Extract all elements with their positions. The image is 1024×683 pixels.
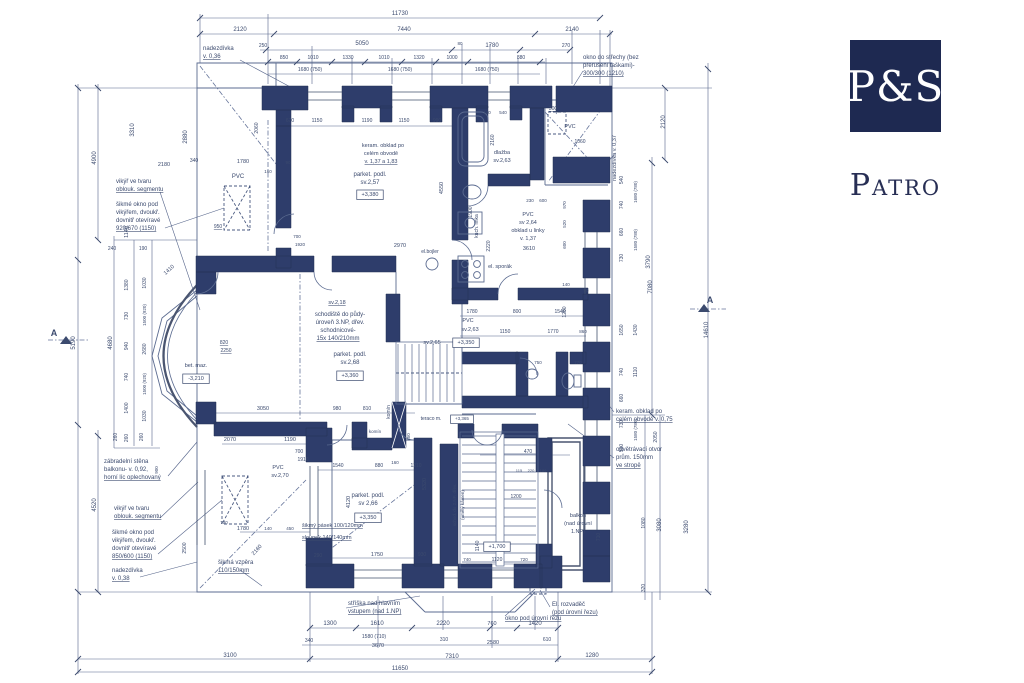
plan-label: 1400 [124,402,130,413]
plan-label: sv.2,18 [328,300,345,306]
plan-label: 880 [517,55,526,61]
plan-label: zábradelní stěna [104,459,149,465]
plan-label: 1320 [413,55,424,61]
plan-label: 160 [264,169,272,174]
plan-label: 4680 [108,336,114,350]
plan-label: přerušení taškami)- [583,63,635,69]
plan-label: vikýřem, dvoukř. [112,538,156,544]
plan-label: 2880 [183,130,189,144]
plan-label: 14610 [704,321,710,338]
plan-label: el.bojler [421,249,439,255]
plan-label: 730 [124,312,130,321]
screenshot-root: 1173021207440214025050508017802708501010… [0,0,1024,683]
plan-label: 1780 [485,43,499,49]
plan-label: 1780 [237,159,249,165]
plan-label: 860 [579,329,587,334]
plan-label: 2120 [233,27,247,33]
plan-label: 1190 [284,437,296,443]
plan-label: 1280 [585,653,599,659]
plan-label: el. sporák [488,264,512,270]
plan-label: 1780 [466,309,477,315]
plan-label: 1140 [475,540,481,551]
plan-label: 1030 [142,277,148,288]
plan-label: dovnitř otevíravé [116,218,161,224]
plan-label: 1540 [332,463,343,469]
plan-label: A [707,295,714,305]
plan-label: 2970 [394,243,406,249]
plan-label: 260 [113,433,119,442]
plan-label: 720 [520,557,528,562]
plan-label: ve stropě [616,463,641,469]
plan-label: šikmá vzpěra [218,560,254,566]
section-markers [60,304,710,344]
plan-label: schodnicové- [320,328,355,334]
plan-label: 850/600 (1150) [112,554,152,560]
plan-label: 1580 (710) [362,634,387,640]
plan-label: obklad u linky [511,228,545,234]
plan-label: celém obvodě [364,151,398,157]
plan-label: odvětrávací otvor [616,447,662,453]
plan-label: 340 [305,638,314,644]
plan-label: 2180 [158,162,170,168]
plan-label: 2160 [490,134,496,145]
plan-label: 290 [314,553,323,559]
plan-label: 930 [418,552,427,558]
plan-label: 1430 [633,324,639,335]
plan-label: 3670 [372,643,384,649]
plan-label: 900 [154,466,159,474]
plan-label: 660 [619,394,625,403]
plan-label: šikmé okno pod [116,202,158,208]
plan-label: schodiště do půdy- [315,311,365,318]
plan-label: sv.2,63 [493,158,510,164]
plan-label: 750 [534,360,542,365]
plan-label: 1610 [370,621,384,627]
plan-label: šikmý pásek 100/120mm [302,523,363,529]
plan-label: 540 [499,110,507,115]
plan-label: 90 [285,160,291,165]
plan-label: 1910 [297,457,308,463]
plan-label: 760 [487,621,496,627]
plan-label: 1500 (920) [142,304,147,326]
plan-label: 270 [562,43,571,49]
plan-label: nadezdívka [203,46,234,52]
plan-label: 220 [528,468,535,473]
plan-label: 115 [516,468,523,473]
plan-label: 1210 [410,463,421,469]
plan-label: 1.NP) [571,529,585,535]
plan-label: 260 [124,434,130,443]
plan-label: 1920 [295,242,306,247]
plan-label: nadezdívka v. 0,37 [612,135,618,181]
plan-label: 2060 [254,122,260,133]
plan-label: 160 [391,460,399,465]
plan-label: 980 [333,406,342,412]
logo-name-text: Patro [843,168,948,203]
plan-label: 1770 [547,329,558,335]
plan-label: oblouk. segmentu [114,514,161,520]
plan-label: celém obvodě v. 0,75 [616,417,673,423]
plan-label: 2160 [251,544,264,557]
plan-label: 5050 [355,41,369,47]
plan-label: vikýř ve tvaru [114,506,149,512]
plan-label: 2050 [653,431,659,442]
dimension-lines [75,14,712,675]
plan-label: kuch. linka [474,214,480,238]
plan-label: 1410 [163,264,176,277]
plan-label: dovnitř otevíravé [112,546,157,552]
plan-label: 1010 [378,55,389,61]
plan-label: v. 1,37 a 1,83 [365,159,398,165]
plan-label: 3790 [646,255,652,269]
plan-label: 1030 [142,410,148,421]
plan-label: 260 [139,433,145,442]
plan-label: (nad úrovní [564,521,592,527]
walls [196,86,612,588]
plan-label: 4900 [92,151,98,165]
plan-label: 770 [574,360,582,365]
plan-label: 650 [406,433,411,441]
plan-label: 740 [619,368,625,377]
plan-label: 3610 [523,246,535,252]
plan-label: komín [386,405,392,419]
plan-label: +1,700 [489,544,506,550]
plan-label: PVC [564,124,575,130]
plan-label: vikýř ve tvaru [116,179,151,185]
plan-label: balkon [570,513,586,519]
plan-label: komín [369,429,382,434]
plan-label: 320 [641,584,647,593]
plan-label: 450 [286,526,294,531]
plan-label: 2580 [487,640,499,646]
plan-label: úroveň 3.NP, dřev. [316,320,365,326]
plan-label: 300/300 (1210) [583,71,624,77]
plan-label: 2140 [565,27,579,33]
plan-label: (umělý kámen) [460,490,465,520]
plan-label: bet. maz. [185,363,208,369]
plan-label: 5190 [71,336,77,350]
plan-label: nadezdívka [112,568,143,574]
plan-label: v. 0,38 [112,576,130,582]
plan-label: 670 [286,118,295,124]
plan-label: keram. obklad po [616,409,663,415]
plan-label: 940 [124,342,130,351]
plan-label: 7310 [445,654,459,660]
plan-label: 730 [619,254,625,263]
plan-label: prům. 150mm [616,454,653,461]
plan-label: 3080 [657,518,663,532]
plan-label: 2120 [661,115,667,129]
plan-label: 340 [190,158,199,164]
plan-label: 730 [220,520,228,525]
plan-label: PVC [272,465,283,471]
door-arcs [196,186,562,508]
plan-label: stříška nad hlavním [348,601,400,607]
plan-label: 140 [562,282,570,287]
plan-label: 2070 [224,437,236,443]
plan-label: sv.2,63 [461,327,478,333]
plan-label: 4550 [439,182,445,194]
plan-label: sv 2,66 [358,501,378,507]
plan-label: 700 [295,449,304,455]
plan-label: parket. podl. [353,172,386,178]
plan-label: 740 [619,201,625,210]
plan-label: 1380 [124,279,130,290]
plan-label: 300 [549,106,558,112]
plan-label: 2220 [486,240,492,251]
plan-label: 1680 (780) [633,181,638,203]
plan-label: 1150 [500,329,511,335]
plan-label: sloupek 140/140mm [302,535,352,541]
plan-label: 1750 [371,552,383,558]
plan-label: +3,350 [360,515,377,521]
plan-label: 250 [259,43,268,49]
plan-label: 950 [214,224,223,230]
plan-label: 3310 [130,123,136,137]
plan-label: 600 [539,198,547,203]
plan-label: sv.2,68 [341,360,361,366]
plan-label: 5320 [422,478,428,490]
plan-label: 230 [526,198,534,203]
plan-label: PVC [522,212,533,218]
plan-label: 800 [513,309,522,315]
plan-label: +3,350 [458,340,475,346]
plan-label: +3,360 [342,373,359,379]
plan-label: 11730 [392,11,409,17]
plan-label: parket. podl. [351,493,384,499]
plan-label: 810 [363,406,372,412]
plan-label: PVC [232,174,245,180]
plan-label: 1650 [619,324,625,335]
plan-label: 1080 [641,517,647,528]
plan-label: 240 [108,246,117,252]
plan-label: oblouk. segmentu [116,187,163,193]
plan-label: okno do střechy (bez [583,55,639,61]
plan-label: okno pod úrovní řezu [505,616,561,622]
plan-label: 15x 140/210mm [316,336,359,342]
plan-label: 1150 [399,118,410,124]
plan-label: 740 [124,373,130,382]
plan-label: v. 0,36 [203,54,221,60]
plan-label: 1120 [492,557,503,563]
plan-label: 3280 [684,520,690,534]
plan-label: balkonu- v. 0,92, [104,467,148,473]
plan-label: 1500 (920) [142,373,147,395]
plan-label: 2500 [182,542,188,553]
plan-label: 850 [280,55,289,61]
plan-label: sv.2,57 [361,180,381,186]
plan-label: El. rozvaděč [552,602,585,608]
plan-label: 1780 [237,526,249,532]
plan-label: 880 [375,463,384,469]
plan-label: 180 [540,468,547,473]
plan-label: 7440 [397,27,411,33]
logo-mark-text: P&S [847,62,944,111]
plan-label: 970 [562,201,567,209]
plan-label: sv.2,70 [271,473,288,479]
plan-label: 710 [596,533,602,542]
plan-label: 2250 [220,348,231,354]
plan-label: 310 [440,637,449,643]
plan-label: +3,380 [362,192,379,198]
plan-label: 1680 (750) [298,67,323,73]
plan-label: 740 [463,557,471,562]
plan-label: 600 [562,241,567,249]
plan-label: 2220 [436,621,450,627]
boiler [426,258,438,270]
plan-label: 1060 [574,139,585,145]
plan-label: sv 2,64 [519,220,537,226]
plan-label: 140 [264,526,272,531]
plan-label: 920/670 (1150) [116,226,156,232]
plan-label: 3050 [257,406,269,412]
plan-label: dlažba [494,150,511,156]
plan-label: 140 [483,110,491,115]
plan-label: v. 1,37 [520,236,536,242]
plan-label: 610 [543,637,552,643]
plan-label: 1010 [307,55,318,61]
plan-label: 520 [562,220,567,228]
plan-label: 90 [583,288,589,293]
plan-label: teraco m. [421,416,442,422]
plan-label: vikýřem, dvoukř. [116,210,160,216]
plan-label: 1200 [510,494,521,500]
plan-label: 4520 [92,498,98,512]
plan-label: 1000 [446,55,457,61]
plan-label: 1330 [342,55,353,61]
plan-label: vstupem (nad 1.NP) [348,609,401,615]
plan-label: 1300 [323,621,337,627]
plan-label: 1190 [362,118,373,124]
plan-label: 470 [524,449,533,455]
plan-label: 1540 [554,309,565,315]
plan-label: 1580 (780) [633,229,638,251]
plan-label: 1680 (750) [388,67,413,73]
plan-label: +3,365 [455,416,469,421]
plan-label: 540 [619,176,625,185]
logo-square: P&S [850,40,941,132]
plan-label: 7080 [648,280,654,294]
plan-label: PVC [462,318,473,324]
plan-label: 1150 [312,118,323,124]
plan-label: schod. do 2.NP, dřev. [452,484,457,526]
plan-label: A [51,328,58,338]
plan-label: keram. obklad po [362,143,404,149]
plan-label: -3,210 [188,376,204,382]
plan-label: 660 [619,228,625,237]
plan-label: 990 [433,118,442,124]
plan-label: horní líc oplechovaný [104,475,161,481]
plan-label: 3100 [223,653,237,659]
plan-label: 11650 [392,666,409,672]
plan-label: 190 [139,246,148,252]
plan-label: 700 [293,234,301,239]
plan-label: 80 [457,41,463,46]
plan-label: šikmé okno pod [112,530,154,536]
plan-label: sv.2,65 [423,340,440,346]
plan-label: parket. podl. [333,352,366,358]
plan-label: 1680 (750) [475,67,500,73]
plan-label: 1110 [633,367,639,378]
plan-label: 110/150mm [218,568,249,574]
plan-label: 2680 [142,343,148,354]
plan-label: 820 [220,340,229,346]
